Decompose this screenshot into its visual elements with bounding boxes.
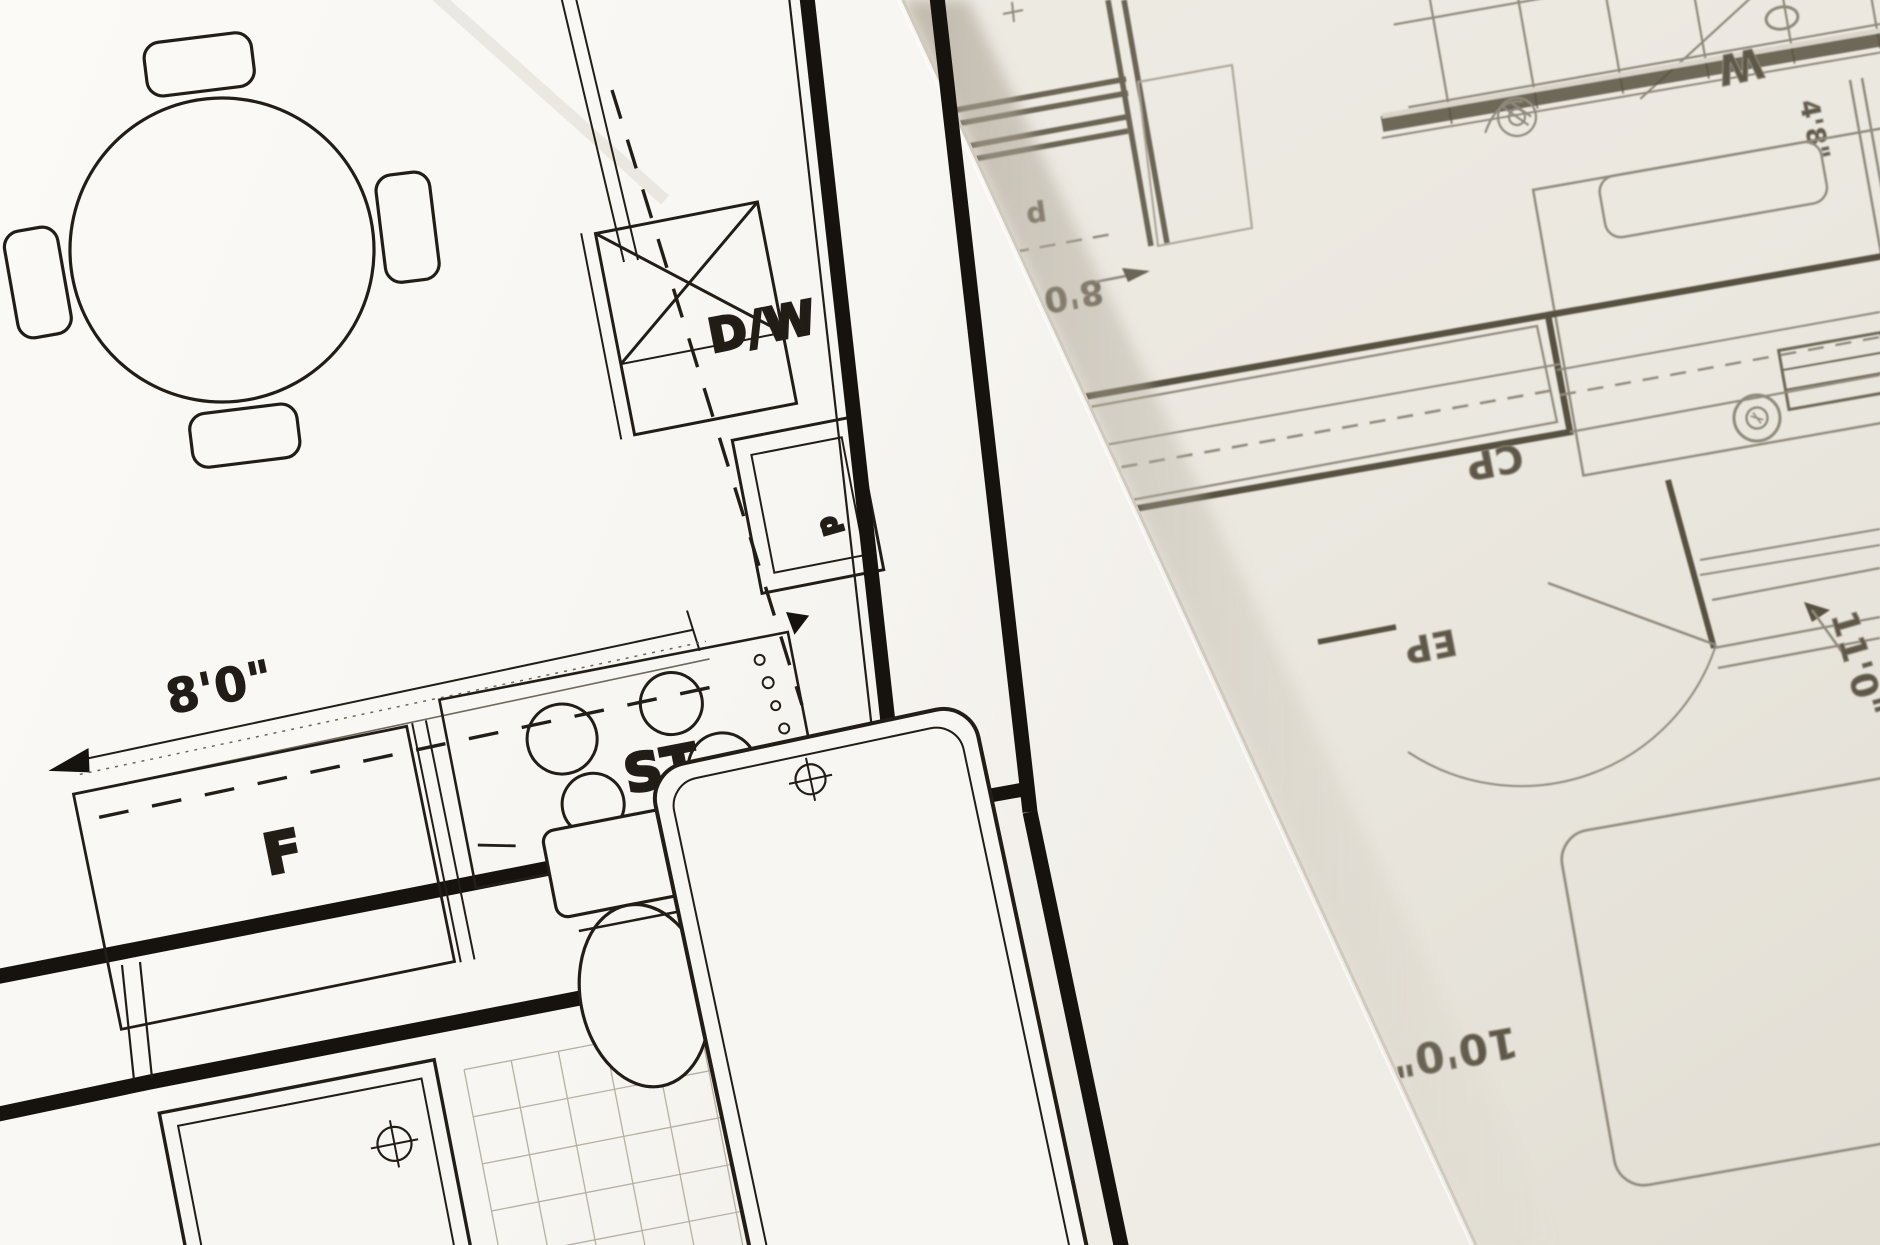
blueprint-svg: W 4'8" bbox=[0, 0, 1880, 1245]
blueprint-photo: W 4'8" bbox=[0, 0, 1880, 1245]
washer-label: W bbox=[1712, 37, 1768, 95]
